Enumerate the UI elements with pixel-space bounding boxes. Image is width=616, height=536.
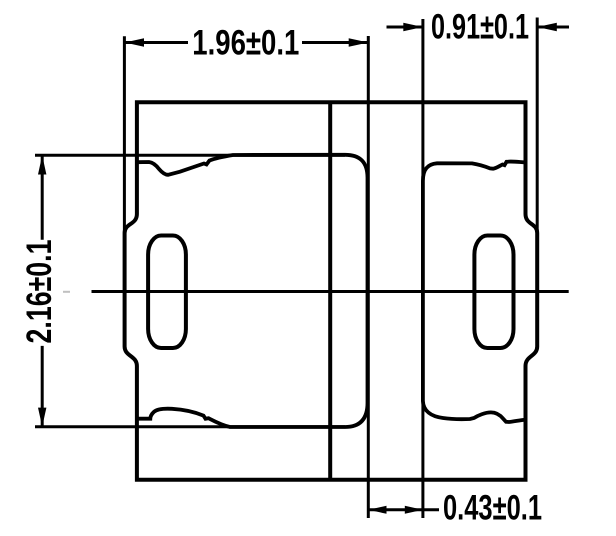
- svg-text:0.43±0.1: 0.43±0.1: [443, 489, 542, 528]
- svg-text:0.91±0.1: 0.91±0.1: [431, 8, 529, 47]
- svg-text:2.16±0.1: 2.16±0.1: [20, 240, 59, 344]
- svg-text:1.96±0.1: 1.96±0.1: [192, 23, 299, 62]
